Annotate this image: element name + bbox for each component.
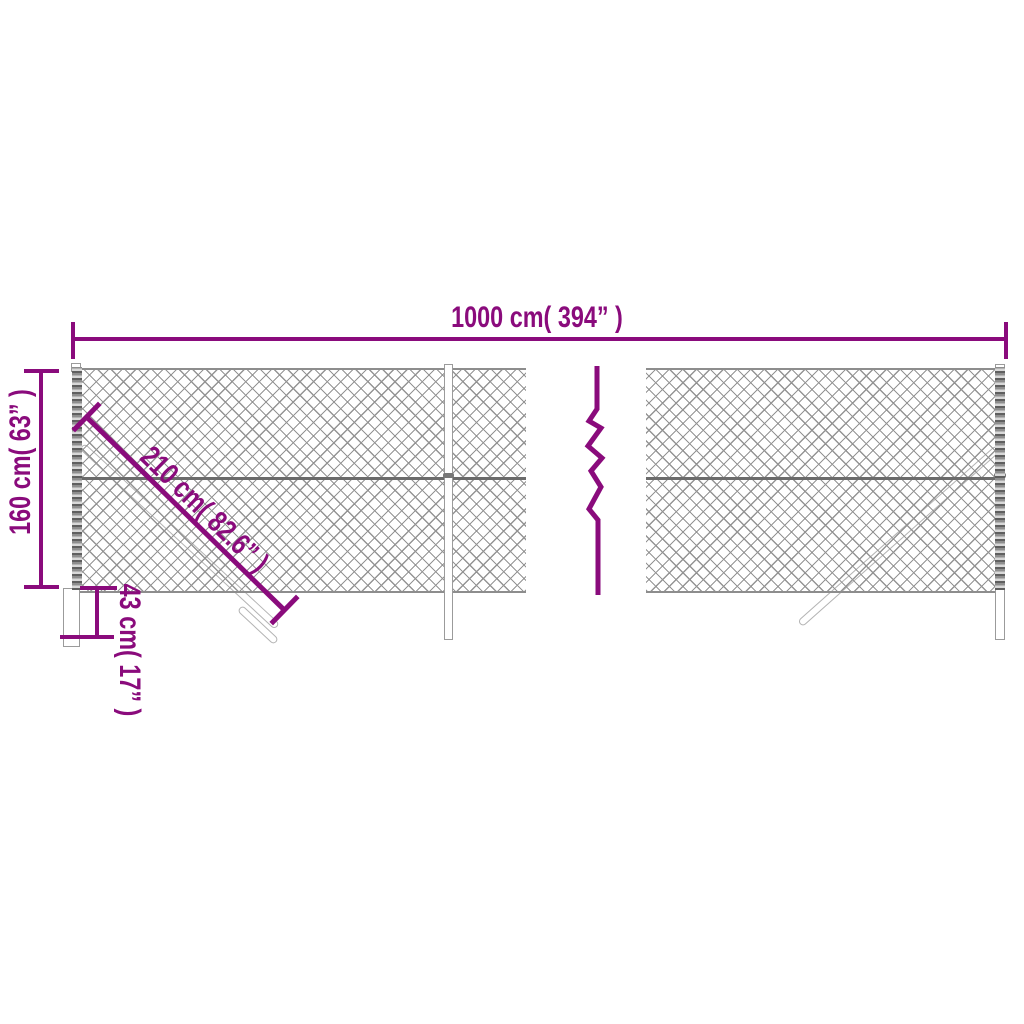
depth-dimension-cap-top bbox=[80, 586, 117, 590]
rail-clamp-middle-post bbox=[443, 473, 454, 478]
fence-dimension-diagram: 1000 cm( 394” ) 160 cm( 63” ) 210 cm( 82… bbox=[0, 0, 1024, 1024]
middle-rail-right bbox=[646, 477, 1005, 480]
width-dimension-cap-left bbox=[71, 322, 75, 359]
height-dimension-label: 160 cm( 63” ) bbox=[6, 389, 36, 535]
height-dimension-cap-top bbox=[24, 369, 59, 373]
depth-dimension-label: 43 cm( 17” ) bbox=[114, 584, 144, 717]
width-dimension-label: 1000 cm( 394” ) bbox=[451, 303, 623, 333]
break-zigzag-icon bbox=[580, 360, 620, 600]
fence-post-middle bbox=[444, 364, 453, 640]
width-dimension-line bbox=[73, 337, 1006, 341]
depth-dimension-line bbox=[95, 588, 99, 637]
middle-rail-left bbox=[74, 477, 526, 480]
depth-dimension-cap-bottom bbox=[60, 635, 114, 639]
mesh-edge-left bbox=[72, 367, 82, 590]
mesh-edge-right bbox=[995, 367, 1005, 590]
width-dimension-cap-right bbox=[1004, 322, 1008, 359]
fence-mesh-panel-right bbox=[646, 368, 1005, 593]
fence-mesh-panel-left bbox=[74, 368, 526, 593]
height-dimension-cap-bottom bbox=[24, 585, 59, 589]
height-dimension-line bbox=[39, 371, 43, 587]
